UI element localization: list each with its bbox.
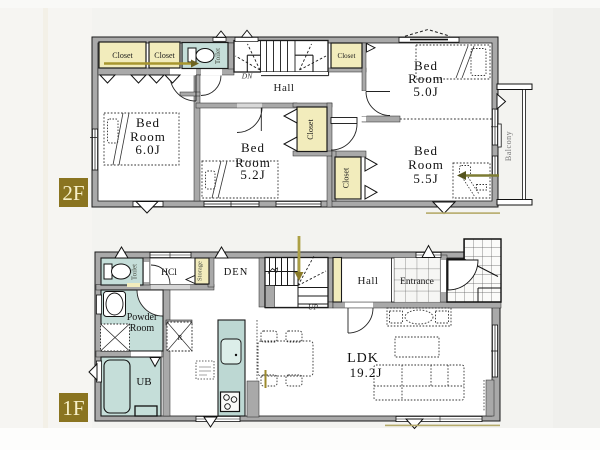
svg-text:Bed: Bed xyxy=(241,140,265,155)
svg-text:1F: 1F xyxy=(62,396,84,420)
svg-text:6.0J: 6.0J xyxy=(135,142,160,157)
svg-text:19.2J: 19.2J xyxy=(350,365,383,380)
svg-text:Entrance: Entrance xyxy=(400,277,434,287)
svg-text:Closet: Closet xyxy=(112,51,133,60)
svg-text:Hall: Hall xyxy=(358,275,379,287)
svg-text:5.2J: 5.2J xyxy=(240,167,265,182)
svg-text:5.0J: 5.0J xyxy=(413,84,438,99)
svg-text:Storage: Storage xyxy=(197,261,204,281)
svg-text:Closet: Closet xyxy=(154,51,175,60)
svg-text:2F: 2F xyxy=(62,181,84,205)
svg-text:5.5J: 5.5J xyxy=(413,171,438,186)
svg-text:Toilet: Toilet xyxy=(214,48,222,64)
svg-text:DEN: DEN xyxy=(224,267,249,278)
svg-text:Room: Room xyxy=(408,157,444,172)
svg-text:DN: DN xyxy=(241,72,253,81)
svg-text:Room: Room xyxy=(130,323,155,334)
svg-text:Closet: Closet xyxy=(338,52,356,60)
svg-text:Closet: Closet xyxy=(306,119,315,140)
svg-text:Balcony: Balcony xyxy=(504,131,513,161)
svg-text:Bed: Bed xyxy=(414,143,438,158)
svg-text:Bed: Bed xyxy=(136,115,160,130)
svg-text:R: R xyxy=(178,334,183,342)
svg-text:Toilet: Toilet xyxy=(131,264,139,280)
svg-text:UB: UB xyxy=(136,376,151,388)
svg-text:Closet: Closet xyxy=(342,167,351,188)
svg-text:Hall: Hall xyxy=(274,82,295,94)
svg-text:UP: UP xyxy=(308,303,318,312)
svg-text:LDK: LDK xyxy=(347,351,379,366)
